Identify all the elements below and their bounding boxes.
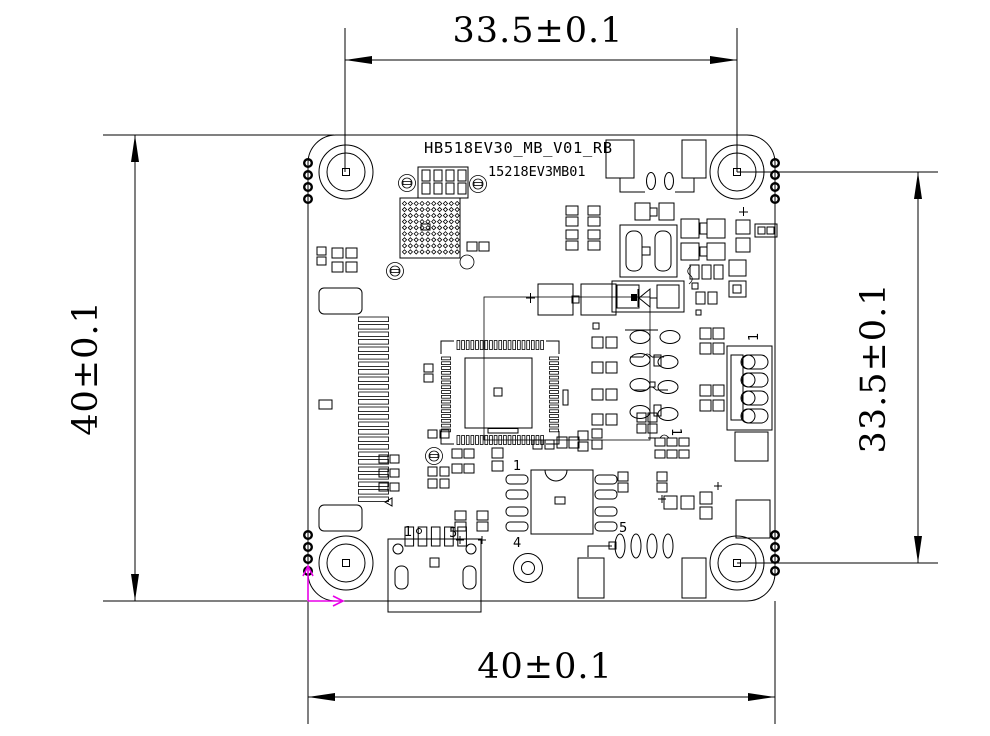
edge-plated-holes bbox=[304, 159, 779, 575]
mounting-holes bbox=[319, 145, 775, 590]
main-ic-qfp bbox=[441, 297, 650, 444]
ffc-connector-pins bbox=[359, 317, 389, 502]
dimension-right-label: 33.5±0.1 bbox=[854, 283, 894, 454]
qfp-body bbox=[465, 358, 532, 428]
power-inductor-2 bbox=[526, 284, 616, 315]
fiducial-marks bbox=[387, 175, 487, 465]
board-subtitle: 15218EV3MB01 bbox=[488, 164, 586, 180]
cap-pair-grid bbox=[681, 219, 725, 260]
soic8-pin1-label: 1 bbox=[513, 459, 521, 474]
top-connector-pads bbox=[606, 140, 706, 192]
dimension-bottom: 40±0.1 bbox=[308, 601, 775, 724]
dimension-left-label: 40±0.1 bbox=[66, 300, 106, 436]
passives-below-cluster bbox=[618, 438, 722, 519]
soic8-pin4-label: 4 bbox=[513, 536, 521, 551]
mounting-hole-top-left bbox=[319, 145, 373, 199]
cluster-pin1-label: 1 bbox=[668, 428, 683, 436]
bottom-connector bbox=[578, 534, 706, 598]
dimension-top-label: 33.5±0.1 bbox=[453, 11, 624, 51]
usb-connector bbox=[388, 529, 481, 613]
pcb-dimension-drawing: 33.5±0.1 40±0.1 33.5±0.1 40±0.1 bbox=[0, 0, 990, 736]
pcb-drawing-canvas: 33.5±0.1 40±0.1 33.5±0.1 40±0.1 bbox=[0, 0, 990, 736]
right-connector-pin1-label: 1 bbox=[747, 333, 762, 341]
capacitor-c1 bbox=[635, 203, 674, 220]
module-outline bbox=[484, 297, 650, 440]
dimension-left: 40±0.1 bbox=[66, 135, 334, 601]
electrolytic-caps bbox=[729, 207, 777, 297]
via-grid-dots bbox=[402, 201, 459, 254]
pad-column bbox=[688, 265, 723, 315]
mounting-hole-bottom-left bbox=[319, 536, 373, 590]
passive-cluster-mid bbox=[592, 328, 724, 438]
usb-pin1-label: 1 bbox=[404, 525, 412, 540]
diode bbox=[612, 281, 684, 312]
dimension-bottom-label: 40±0.1 bbox=[477, 647, 613, 687]
origin-marker bbox=[303, 566, 343, 606]
board-outline bbox=[308, 135, 775, 601]
soic8-ic bbox=[506, 470, 617, 583]
passives-top-center bbox=[467, 206, 600, 329]
board-title: HB518EV30_MB_V01_RB bbox=[424, 139, 613, 157]
inductor bbox=[620, 225, 677, 277]
right-connector bbox=[727, 346, 772, 538]
usb-pin5-label: 5 bbox=[449, 526, 457, 541]
header-footprint bbox=[418, 167, 468, 198]
